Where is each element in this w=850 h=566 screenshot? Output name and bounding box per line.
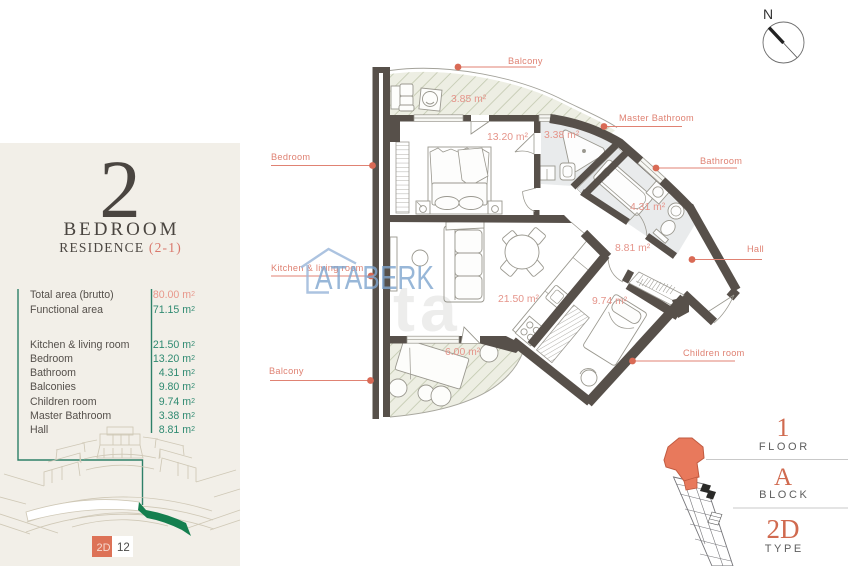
svg-text:Balcony: Balcony — [508, 56, 543, 66]
svg-text:21.50 m²: 21.50 m² — [498, 294, 540, 305]
svg-text:Balcony: Balcony — [269, 366, 304, 376]
svg-text:9.74 m²: 9.74 m² — [592, 296, 628, 307]
svg-text:3.38 m²: 3.38 m² — [544, 130, 580, 141]
svg-text:6.00 m²: 6.00 m² — [445, 347, 481, 358]
svg-text:Bedroom: Bedroom — [271, 152, 310, 162]
svg-text:4.31 m²: 4.31 m² — [630, 202, 666, 213]
svg-text:Hall: Hall — [747, 244, 764, 254]
svg-text:2D: 2D — [97, 542, 111, 554]
svg-text:12: 12 — [117, 542, 130, 554]
svg-text:Children room: Children room — [683, 348, 745, 358]
svg-text:8.81 m²: 8.81 m² — [615, 243, 651, 254]
svg-text:N: N — [763, 6, 773, 22]
svg-text:13.20 m²: 13.20 m² — [487, 132, 529, 143]
svg-text:3.85 m²: 3.85 m² — [451, 94, 487, 105]
svg-text:Master Bathroom: Master Bathroom — [619, 113, 694, 123]
svg-text:Bathroom: Bathroom — [700, 156, 742, 166]
svg-text:ta: ta — [393, 271, 462, 345]
